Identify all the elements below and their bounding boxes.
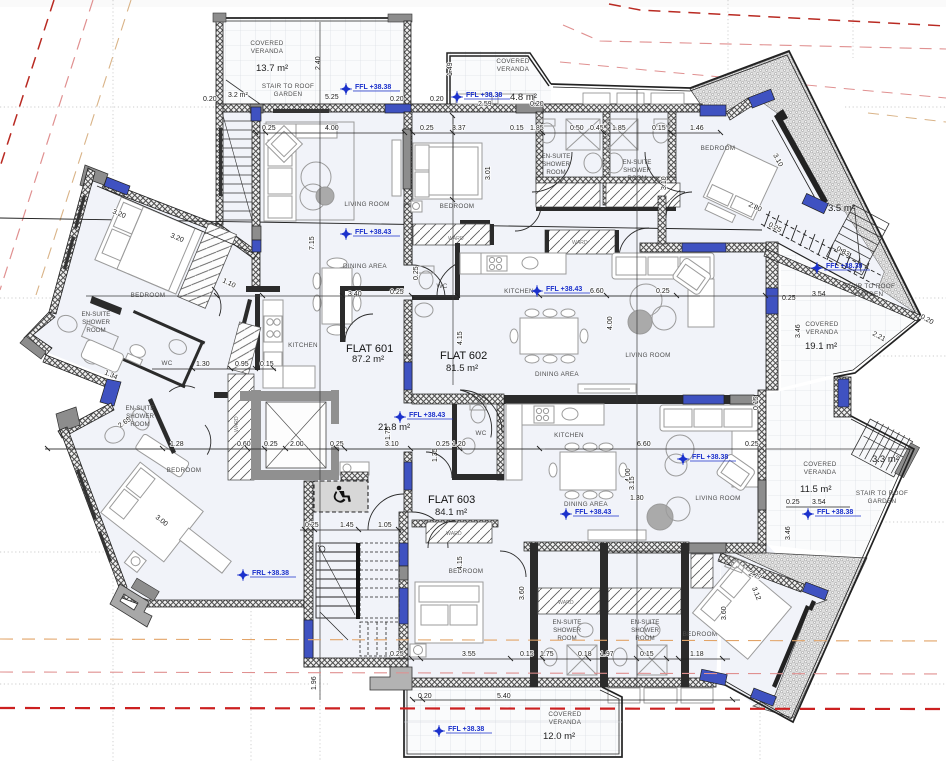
svg-text:SHOWER: SHOWER [82, 319, 110, 326]
svg-text:0.20: 0.20 [390, 96, 404, 103]
svg-text:BEDROOM: BEDROOM [701, 145, 736, 152]
svg-text:0.15: 0.15 [753, 396, 760, 410]
svg-text:0.25: 0.25 [390, 651, 404, 658]
svg-text:0.20: 0.20 [418, 693, 432, 700]
svg-text:SHOWER: SHOWER [542, 161, 570, 168]
svg-text:0.25: 0.25 [390, 289, 404, 296]
svg-text:3.60: 3.60 [519, 586, 526, 600]
svg-text:3.01: 3.01 [485, 166, 492, 180]
svg-text:WC: WC [436, 283, 447, 290]
svg-text:6.60: 6.60 [637, 441, 651, 448]
svg-text:KITCHEN: KITCHEN [504, 288, 534, 295]
svg-text:3.46: 3.46 [785, 526, 792, 540]
svg-text:EN-SUITE: EN-SUITE [126, 405, 155, 412]
svg-text:BEDROOM: BEDROOM [449, 568, 484, 575]
svg-text:STAIR TO ROOF: STAIR TO ROOF [843, 283, 895, 290]
svg-text:19.1 m²: 19.1 m² [805, 341, 837, 352]
svg-text:FFL +38.38: FFL +38.38 [448, 726, 484, 733]
svg-text:WC: WC [161, 360, 172, 367]
svg-text:0.15: 0.15 [640, 651, 654, 658]
svg-text:WARD: WARD [558, 600, 574, 606]
svg-text:0.25: 0.25 [330, 441, 344, 448]
svg-text:GARDEN: GARDEN [855, 291, 884, 298]
svg-text:BEDROOM: BEDROOM [440, 203, 475, 210]
svg-text:81.5 m²: 81.5 m² [446, 363, 478, 374]
svg-text:0.15: 0.15 [510, 125, 524, 132]
svg-text:0.18: 0.18 [578, 651, 592, 658]
svg-text:VERANDA: VERANDA [806, 329, 839, 336]
svg-text:1.28: 1.28 [170, 441, 184, 448]
svg-text:DINING AREA: DINING AREA [535, 371, 579, 378]
svg-text:BEDROOM: BEDROOM [167, 467, 202, 474]
svg-text:FFL +38.43: FFL +38.43 [409, 412, 445, 419]
svg-text:0.50: 0.50 [570, 125, 584, 132]
svg-text:0.25: 0.25 [264, 441, 278, 448]
svg-text:EN-SUITE: EN-SUITE [542, 153, 571, 160]
svg-text:VERANDA: VERANDA [549, 719, 582, 726]
svg-text:LIVING ROOM: LIVING ROOM [344, 201, 389, 208]
svg-text:BEDROOM: BEDROOM [683, 631, 718, 638]
svg-text:FFL +38.38: FFL +38.38 [817, 509, 853, 516]
svg-text:0.20: 0.20 [203, 96, 217, 103]
svg-text:1.97: 1.97 [600, 651, 614, 658]
svg-text:LIVING ROOM: LIVING ROOM [625, 352, 670, 359]
svg-text:COVERED: COVERED [250, 40, 283, 47]
svg-text:FFL +38.38: FFL +38.38 [692, 454, 728, 461]
svg-text:1.85: 1.85 [530, 125, 544, 132]
svg-text:WARD: WARD [234, 416, 240, 432]
svg-text:ROOM: ROOM [546, 169, 565, 176]
svg-text:DINING AREA: DINING AREA [343, 263, 387, 270]
svg-text:WARD: WARD [448, 236, 464, 242]
svg-text:1.18: 1.18 [690, 651, 704, 658]
svg-text:COVERED: COVERED [548, 711, 581, 718]
svg-text:0.25: 0.25 [420, 125, 434, 132]
svg-text:12.0 m²: 12.0 m² [543, 731, 575, 742]
svg-text:VERANDA: VERANDA [251, 48, 284, 55]
svg-text:3.40: 3.40 [348, 291, 362, 298]
svg-text:3.5 m²: 3.5 m² [828, 203, 855, 214]
svg-text:0.25: 0.25 [436, 441, 450, 448]
svg-text:5.40: 5.40 [497, 693, 511, 700]
svg-text:0.95: 0.95 [235, 361, 249, 368]
svg-text:BEDROOM: BEDROOM [131, 292, 166, 299]
svg-text:0.25: 0.25 [305, 522, 319, 529]
svg-text:WC: WC [475, 430, 486, 437]
svg-text:FFL +38.38: FFL +38.38 [466, 92, 502, 99]
svg-text:21.8 m²: 21.8 m² [378, 422, 410, 433]
svg-text:0.15: 0.15 [520, 651, 534, 658]
svg-text:84.1 m²: 84.1 m² [435, 507, 467, 518]
svg-text:ROOM: ROOM [635, 635, 654, 642]
svg-text:4.00: 4.00 [607, 316, 614, 330]
svg-text:0.15: 0.15 [652, 125, 666, 132]
svg-text:FRL +38.38: FRL +38.38 [252, 570, 289, 577]
svg-text:ROOM: ROOM [130, 421, 149, 428]
svg-text:EN-SUITE: EN-SUITE [631, 619, 660, 626]
svg-text:1.20: 1.20 [452, 441, 466, 448]
svg-text:1.05: 1.05 [378, 522, 392, 529]
svg-text:3.2 m²: 3.2 m² [228, 92, 249, 99]
svg-text:0.60: 0.60 [237, 441, 251, 448]
svg-text:1.85: 1.85 [612, 125, 626, 132]
svg-text:FFL +38.43: FFL +38.43 [575, 509, 611, 516]
svg-text:ROOM: ROOM [557, 635, 576, 642]
svg-text:87.2 m²: 87.2 m² [352, 354, 384, 365]
svg-text:0.20: 0.20 [430, 96, 444, 103]
svg-text:WARD: WARD [446, 531, 462, 537]
svg-text:13.7 m²: 13.7 m² [256, 63, 288, 74]
svg-text:1.30: 1.30 [196, 361, 210, 368]
svg-text:3.60: 3.60 [721, 606, 728, 620]
svg-text:6.60: 6.60 [590, 288, 604, 295]
svg-text:3.46: 3.46 [795, 324, 802, 338]
svg-text:11.5 m²: 11.5 m² [800, 484, 832, 495]
svg-text:GARDEN: GARDEN [868, 498, 897, 505]
svg-text:COVERED: COVERED [805, 321, 838, 328]
svg-text:1.45: 1.45 [340, 522, 354, 529]
svg-text:0.25: 0.25 [786, 499, 800, 506]
svg-text:ROOM: ROOM [86, 327, 105, 334]
svg-text:0.25: 0.25 [656, 288, 670, 295]
svg-text:2.40: 2.40 [315, 56, 322, 70]
svg-text:STAIR TO ROOF: STAIR TO ROOF [262, 83, 314, 90]
svg-text:FLAT 603: FLAT 603 [428, 494, 475, 506]
svg-text:FFL +38.43: FFL +38.43 [546, 286, 582, 293]
svg-text:3.55: 3.55 [462, 651, 476, 658]
svg-text:4.00: 4.00 [325, 125, 339, 132]
svg-text:KITCHEN: KITCHEN [554, 432, 584, 439]
svg-text:LIVING ROOM: LIVING ROOM [695, 495, 740, 502]
svg-text:3.10: 3.10 [385, 441, 399, 448]
svg-text:1.75: 1.75 [540, 651, 554, 658]
svg-text:DINING AREA: DINING AREA [564, 501, 608, 508]
svg-text:WARD: WARD [572, 240, 588, 246]
svg-text:3.15: 3.15 [629, 476, 636, 490]
svg-text:3.54: 3.54 [812, 499, 826, 506]
svg-text:GARDEN: GARDEN [274, 91, 303, 98]
svg-text:VERANDA: VERANDA [804, 469, 837, 476]
svg-text:3.3 m²: 3.3 m² [872, 454, 899, 465]
svg-text:3.54: 3.54 [812, 291, 826, 298]
svg-text:4.15: 4.15 [457, 556, 464, 570]
svg-text:1.96: 1.96 [311, 676, 318, 690]
svg-text:4.15: 4.15 [457, 331, 464, 345]
svg-text:VERANDA: VERANDA [497, 66, 530, 73]
svg-text:STAIR TO ROOF: STAIR TO ROOF [856, 490, 908, 497]
svg-text:7.15: 7.15 [309, 236, 316, 250]
svg-text:SHOWER: SHOWER [553, 627, 581, 634]
svg-text:1.49: 1.49 [447, 62, 454, 76]
svg-text:SHOWER: SHOWER [126, 413, 154, 420]
svg-text:KITCHEN: KITCHEN [288, 342, 318, 349]
svg-text:4.8 m²: 4.8 m² [510, 92, 537, 103]
svg-text:FLAT 602: FLAT 602 [440, 350, 487, 362]
svg-text:0.25: 0.25 [745, 441, 759, 448]
svg-text:3.10: 3.10 [661, 176, 668, 190]
svg-text:2.59: 2.59 [478, 101, 492, 108]
svg-text:FFL +38.38: FFL +38.38 [826, 263, 862, 270]
svg-text:3.37: 3.37 [452, 125, 466, 132]
svg-text:FFL +38.38: FFL +38.38 [355, 84, 391, 91]
svg-text:FFL +38.43: FFL +38.43 [355, 229, 391, 236]
svg-text:2.00: 2.00 [290, 441, 304, 448]
svg-text:5.25: 5.25 [325, 94, 339, 101]
svg-text:COVERED: COVERED [496, 58, 529, 65]
svg-text:COVERED: COVERED [803, 461, 836, 468]
svg-text:EN-SUITE: EN-SUITE [82, 311, 111, 318]
svg-text:EN-SUITE: EN-SUITE [553, 619, 582, 626]
svg-text:SHOWER: SHOWER [631, 627, 659, 634]
svg-text:0.25: 0.25 [413, 266, 420, 280]
svg-text:1.46: 1.46 [690, 125, 704, 132]
